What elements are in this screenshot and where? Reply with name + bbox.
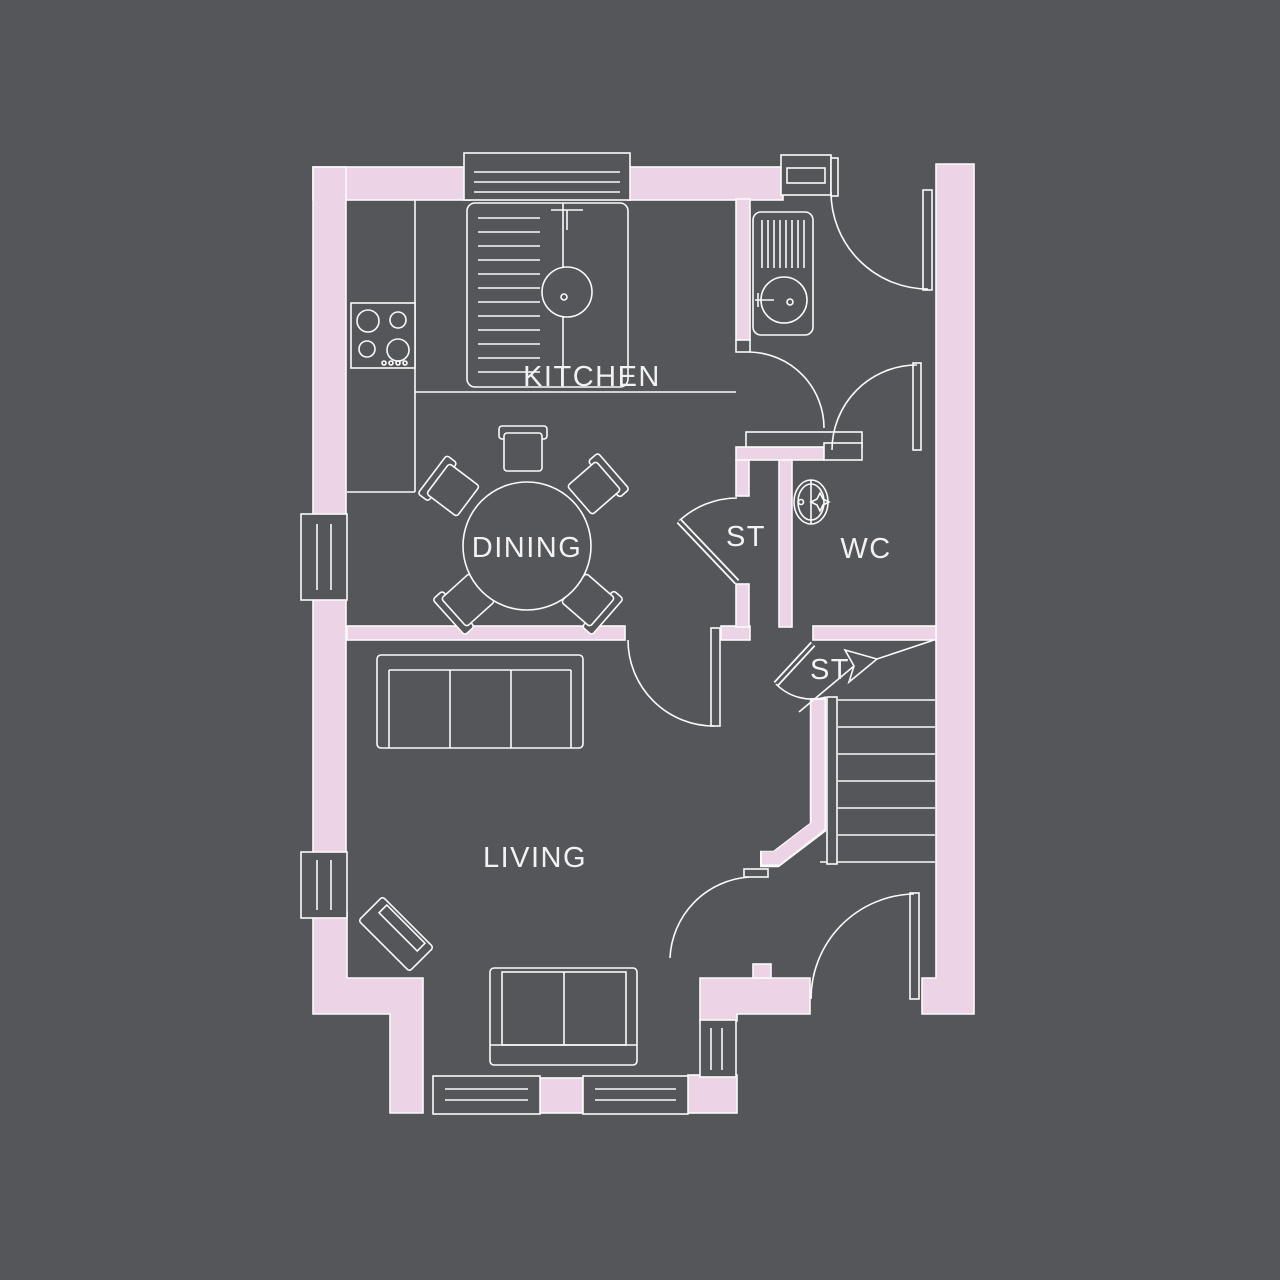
living-label: LIVING	[483, 842, 587, 874]
wall-st-wc-top	[736, 447, 824, 460]
bottom-right-window-icon	[700, 1020, 736, 1077]
dining-window-icon	[301, 514, 347, 600]
hall-storage-label: ST	[726, 521, 766, 553]
wall-notch	[753, 964, 771, 978]
wall-right-outer	[922, 164, 974, 1014]
living-hall-door-icon	[670, 869, 768, 958]
hall-sink-icon	[753, 212, 813, 335]
living-bottom-window-b-icon	[583, 1076, 688, 1114]
rear-door-icon	[811, 893, 919, 999]
wall-bottom-mid	[540, 1078, 583, 1113]
dining-label: DINING	[472, 532, 583, 564]
wc-label: WC	[840, 533, 891, 565]
corner-tv-unit-icon	[359, 897, 434, 972]
wall-top-mid	[628, 167, 783, 200]
hob-icon	[351, 303, 415, 368]
sofa-2-seat-icon	[490, 968, 637, 1065]
living-side-window-icon	[301, 852, 347, 918]
dining-living-door-icon	[628, 628, 720, 726]
dining-chair-icon	[499, 426, 547, 471]
wall-bottom-right	[700, 978, 810, 1021]
bulkhead-box-2	[824, 443, 862, 460]
wall-left-upper	[313, 167, 346, 520]
kitchen-door-icon	[736, 340, 824, 428]
living-bottom-window-a-icon	[433, 1076, 540, 1114]
floor-plan: KITCHEN DINING ST WC ST LIVING	[0, 0, 1280, 1280]
kitchen-window-icon	[464, 153, 630, 200]
wall-kitchen-hall	[736, 199, 750, 340]
kitchen-sink-icon	[467, 203, 628, 387]
wall-wc-bottom-right	[813, 626, 936, 640]
wall-hall-stairs	[762, 700, 818, 858]
kitchen-label: KITCHEN	[523, 361, 661, 393]
stairs-storage-label: ST	[810, 654, 850, 686]
floor-plan-page: KITCHEN DINING ST WC ST LIVING	[0, 0, 1280, 1280]
stair-handrail	[827, 697, 837, 864]
wall-left-mid	[313, 594, 346, 858]
wall-st-left-lower	[736, 584, 749, 627]
dining-set	[418, 426, 630, 635]
wall-bottom-pier	[688, 1075, 737, 1113]
sofa-3-seat-icon	[377, 655, 583, 748]
wall-wc-bottom-left	[721, 626, 750, 640]
wall-st-left-upper	[736, 460, 749, 496]
wc-basin-icon	[794, 480, 829, 524]
wall-st-wc-divider	[779, 460, 792, 627]
